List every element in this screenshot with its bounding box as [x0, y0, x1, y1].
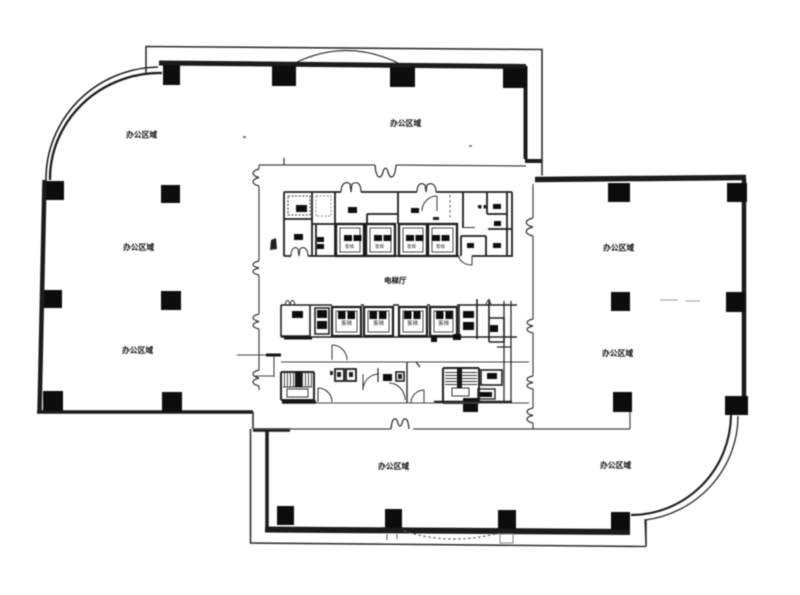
svg-text:办公区域: 办公区域 — [603, 243, 634, 253]
svg-text:客梯: 客梯 — [407, 243, 416, 250]
svg-text:客梯: 客梯 — [438, 319, 450, 327]
svg-text:办公区域: 办公区域 — [600, 460, 631, 470]
svg-text:办公区域: 办公区域 — [602, 348, 633, 358]
svg-text:客梯: 客梯 — [345, 243, 354, 250]
svg-text:电梯厅: 电梯厅 — [384, 275, 407, 285]
svg-text:办公区域: 办公区域 — [122, 345, 153, 355]
svg-text:客梯: 客梯 — [407, 319, 419, 327]
svg-text:客梯: 客梯 — [375, 243, 384, 250]
svg-text:客梯: 客梯 — [436, 243, 445, 250]
svg-text:办公区域: 办公区域 — [126, 130, 157, 140]
svg-text:办公区域: 办公区域 — [123, 242, 154, 252]
svg-text:办公区域: 办公区域 — [378, 461, 409, 471]
svg-text:客梯: 客梯 — [341, 319, 353, 327]
svg-text:客梯: 客梯 — [373, 319, 385, 327]
svg-text:办公区域: 办公区域 — [390, 118, 421, 128]
